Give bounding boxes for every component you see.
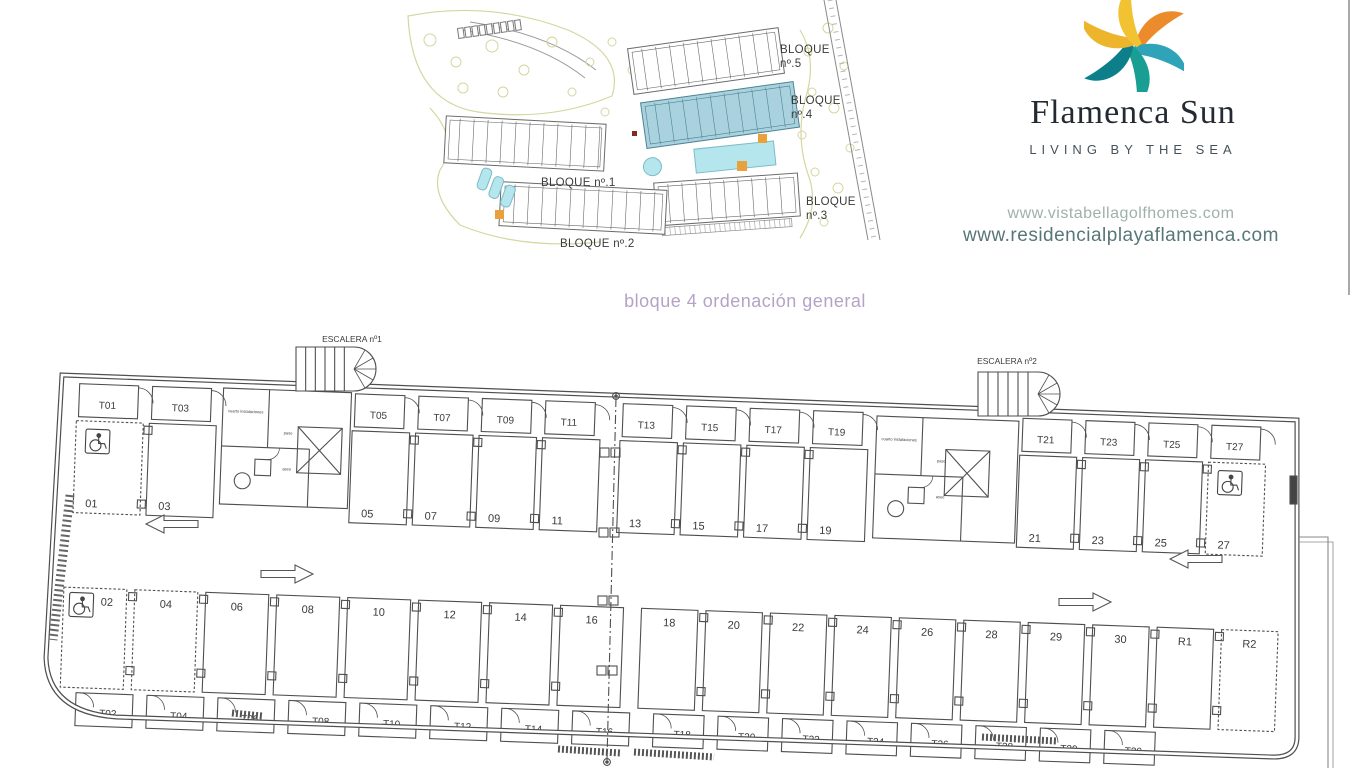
entrance-hatch [558,749,620,753]
storage-label-T15: T15 [701,423,719,435]
brand-urls: www.vistabellagolfhomes.com www.residenc… [945,205,1297,247]
space-label-19: 19 [819,525,832,537]
brand-name: Flamenca Sun [953,94,1313,132]
block-1-label: BLOQUE nº.1 [541,177,616,189]
space-label-07: 07 [424,510,437,522]
escalera-2-label: ESCALERA nº2 [977,356,1037,366]
plan-text: aseo [282,466,292,471]
website-link-2[interactable]: www.residencialplayaflamenca.com [945,225,1297,247]
space-label-16: 16 [585,614,598,626]
site-block-5 [628,28,785,95]
space-label-17: 17 [756,523,769,535]
site-accent [737,161,747,171]
storage-label-T09: T09 [497,415,515,427]
block-2-label: BLOQUE nº.2 [560,238,635,250]
space-label-23: 23 [1091,535,1104,547]
storage-label-T27: T27 [1226,442,1244,454]
space-label-R1: R1 [1178,636,1192,649]
drawing-title: bloque 4 ordenación general [575,291,915,312]
right-wall-door [1290,476,1297,504]
space-label-03: 03 [158,501,171,513]
plan-text: paso [284,430,294,435]
storage-label-T19: T19 [828,427,846,439]
stairs-escalera-1 [296,347,376,391]
storage-label-T13: T13 [637,420,655,432]
storage-label-T21: T21 [1037,435,1055,447]
space-label-11: 11 [551,515,563,527]
storage-label-T17: T17 [764,425,782,437]
space-label-08: 08 [301,604,314,616]
space-label-05: 05 [361,508,374,520]
space-label-04: 04 [160,599,173,611]
space-label-01: 01 [85,498,98,510]
block-5-label: BLOQUE [780,44,830,56]
storage-label-T11: T11 [560,417,577,429]
space-label-22: 22 [792,622,805,634]
space-label-21: 21 [1028,533,1041,545]
space-label-06: 06 [230,601,243,613]
space-label-18: 18 [663,617,676,629]
space-label-28: 28 [985,629,998,641]
space-label-R2: R2 [1242,638,1256,651]
space-label-27: 27 [1217,540,1230,552]
floor-plan: T0101T0303T0505T0707T0909T1111T1313T1515… [0,326,1366,768]
flamenca-sun-logo-icon [1084,0,1184,92]
brand-tagline: LIVING BY THE SEA [953,142,1313,157]
site-accent [495,210,504,219]
space-label-24: 24 [856,624,869,636]
site-plan-buildings [444,28,801,236]
space-label-14: 14 [514,612,527,624]
block-4-label-2: nº.4 [791,109,813,121]
website-link-1[interactable]: www.vistabellagolfhomes.com [945,205,1297,223]
stairs-escalera-2 [978,372,1060,416]
site-block-1 [444,116,606,171]
storage-label-T05: T05 [370,410,388,422]
site-block-4 [641,82,800,149]
entrance-hatch [634,752,714,757]
escalera-1-label: ESCALERA nº1 [322,334,382,344]
storage-label-T03: T03 [172,403,190,415]
space-label-25: 25 [1154,537,1167,549]
space-label-09: 09 [488,513,501,525]
space-label-15: 15 [692,520,705,532]
block-5-label-2: nº.5 [780,58,801,70]
header-divider [1348,0,1350,295]
space-label-30: 30 [1114,634,1127,646]
storage-label-T01: T01 [99,400,117,412]
block-3-label-2: nº.3 [806,210,827,222]
space-label-20: 20 [727,619,740,631]
block-4-label: BLOQUE [791,95,841,107]
site-block-3 [654,173,801,236]
stair-labels: ESCALERA nº1 ESCALERA nº2 [322,334,1037,366]
space-label-13: 13 [629,518,642,530]
space-label-29: 29 [1050,631,1063,643]
space-label-26: 26 [921,627,934,639]
storage-label-T25: T25 [1163,439,1181,451]
storage-label-T07: T07 [433,413,451,425]
space-label-10: 10 [372,606,385,618]
site-accent [758,134,767,143]
storage-label-T23: T23 [1100,437,1118,449]
space-label-02: 02 [101,597,114,609]
space-label-12: 12 [443,609,456,621]
plan-sheet: BLOQUE nº.5 BLOQUE nº.4 BLOQUE nº.1 BLOQ… [0,0,1366,768]
block-3-label: BLOQUE [806,196,856,208]
site-plan: BLOQUE nº.5 BLOQUE nº.4 BLOQUE nº.1 BLOQ… [400,0,960,262]
site-block-2 [499,182,667,235]
